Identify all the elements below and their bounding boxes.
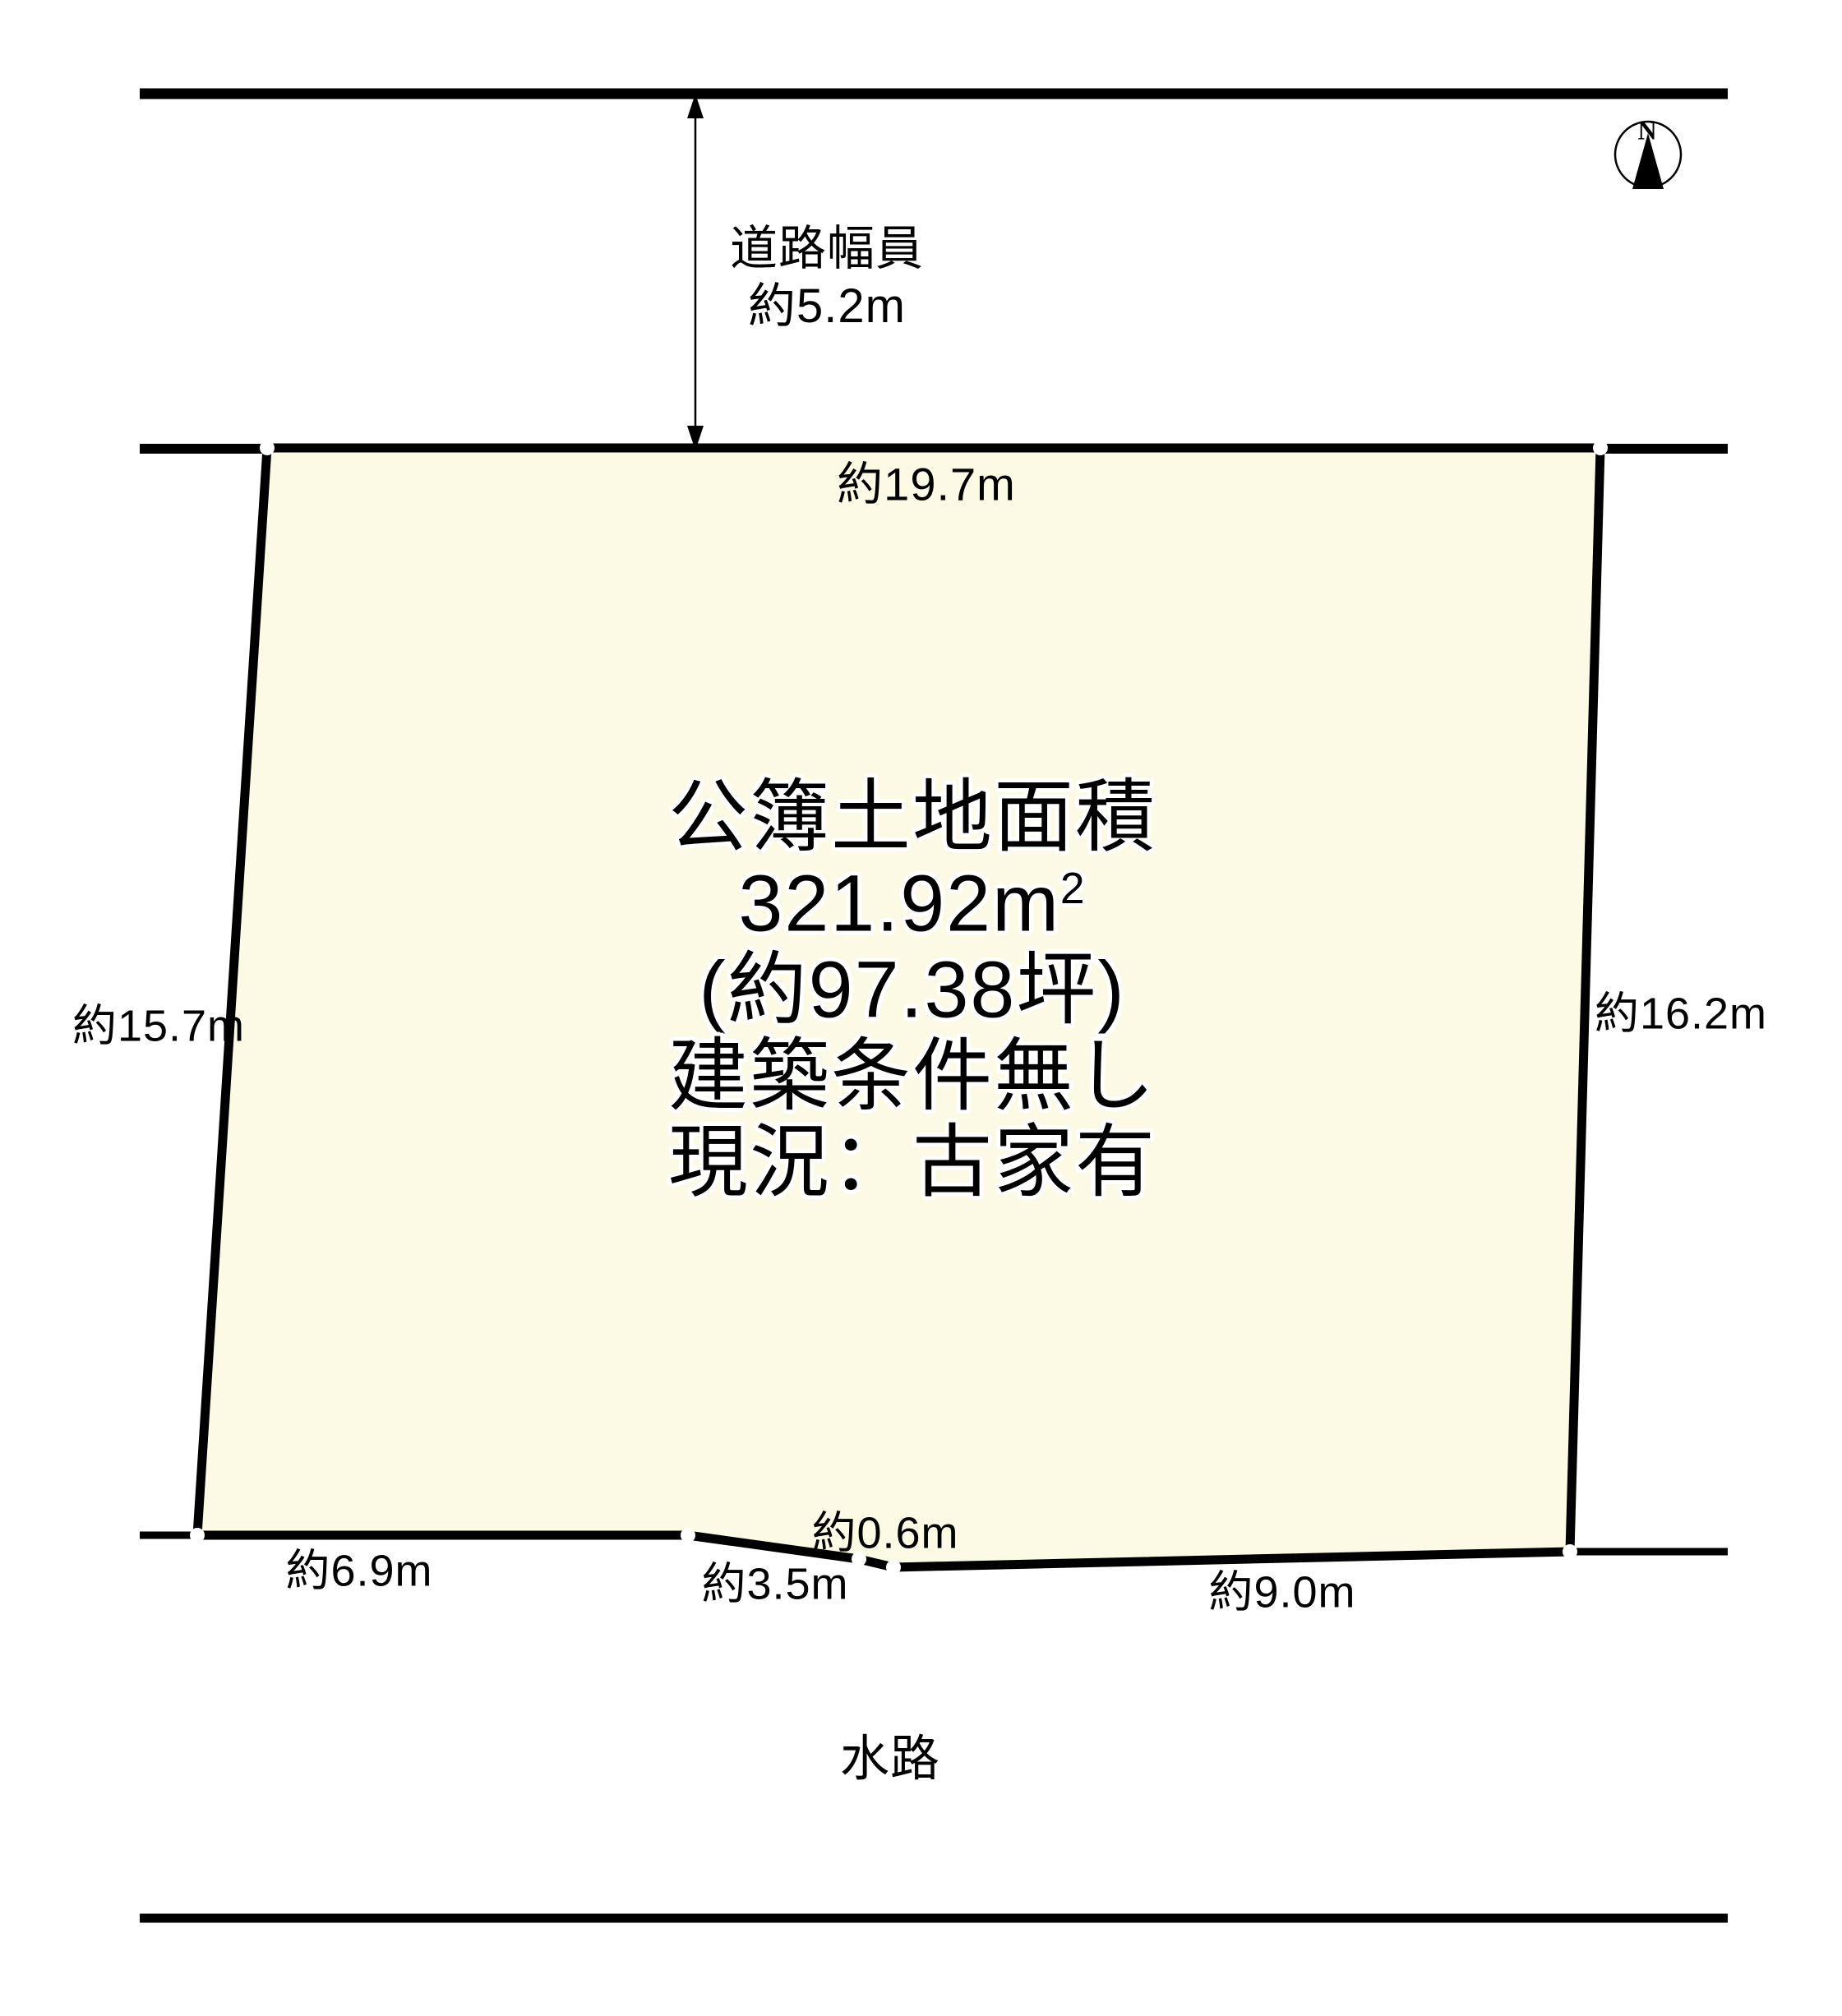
- parcel-area-number: 321.92m: [738, 859, 1060, 948]
- dimension-bottom-notch: 約0.6m: [811, 1497, 958, 1562]
- parcel-status: 現況：古家有: [668, 1119, 1156, 1206]
- dimension-bottom-right: 約9.0m: [1208, 1556, 1355, 1621]
- vertex-dot: [1593, 441, 1608, 455]
- dimension-top: 約19.7m: [837, 448, 1016, 514]
- road-width-annotation: 道路幅員 約5.2m: [730, 220, 924, 335]
- road-width-title: 道路幅員: [730, 220, 924, 278]
- vertex-dot: [681, 1528, 695, 1543]
- parcel-area-title: 公簿土地面積: [668, 774, 1156, 860]
- vertex-dot: [190, 1528, 205, 1543]
- parcel-info-block: 公簿土地面積 321.92m2 (約97.38坪) 建築条件無し 現況：古家有: [668, 774, 1156, 1206]
- road-width-value: 約5.2m: [730, 278, 924, 335]
- parcel-area-tsubo: (約97.38坪): [668, 947, 1156, 1033]
- dimension-right: 約16.2m: [1595, 977, 1767, 1042]
- parcel-condition: 建築条件無し: [668, 1033, 1156, 1119]
- vertex-dot: [886, 1560, 901, 1575]
- compass-north-label: N: [1637, 116, 1656, 146]
- parcel-area-value: 321.92m2: [668, 860, 1156, 947]
- vertex-dot: [260, 441, 275, 455]
- dimension-left: 約15.7m: [72, 990, 245, 1054]
- land-plot-diagram: N 道路幅員 約5.2m 約19.7m 約15.7m 約16.2m 約6.9m …: [0, 0, 1842, 2016]
- waterway-label: 水路: [840, 1719, 940, 1791]
- dimension-bottom-left: 約6.9m: [285, 1534, 432, 1599]
- parcel-area-superscript: 2: [1060, 865, 1087, 913]
- vertex-dot: [1563, 1544, 1577, 1559]
